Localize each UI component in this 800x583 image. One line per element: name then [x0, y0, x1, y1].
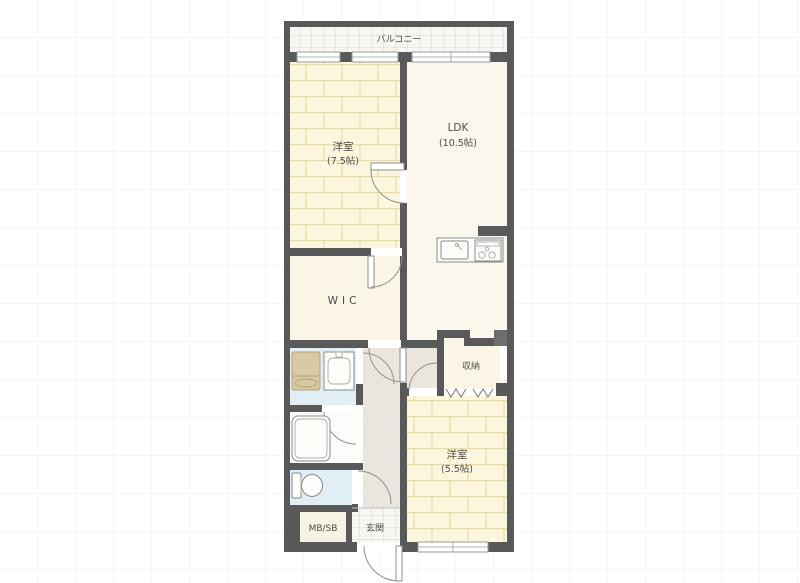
range-hood-wall-stub — [478, 226, 507, 236]
washbasin-icon — [324, 352, 354, 390]
toilet-icon — [292, 473, 323, 498]
bedroom-second-window — [418, 542, 488, 552]
ldk-label: LDK — [448, 122, 470, 134]
kitchen-counter — [437, 238, 503, 262]
wic-label: WIC — [328, 295, 361, 307]
bedroom-main-size: (7.5帖) — [327, 155, 359, 167]
balcony-label: バルコニー — [377, 34, 422, 45]
storage-folding-doors — [444, 388, 496, 397]
floorplan-image: バルコニー 洋室 (7.5帖) LDK (10.5帖) WIC 収納 洋室 (5… — [0, 0, 800, 583]
bedroom-main-floor — [290, 62, 400, 248]
structural-pillar — [494, 330, 507, 346]
bedroom-second-size: (5.5帖) — [441, 463, 473, 475]
balcony-window-bedroom-left — [297, 52, 340, 62]
washing-machine-icon — [292, 352, 320, 390]
ldk-floor — [407, 62, 507, 340]
meter-box-label: MB/SB — [309, 524, 338, 534]
bathtub-icon — [292, 416, 330, 461]
balcony-window-ldk — [412, 52, 490, 62]
bedroom-second-label: 洋室 — [447, 448, 468, 461]
kitchen-sink-icon — [441, 241, 468, 259]
floorplan-svg: バルコニー 洋室 (7.5帖) LDK (10.5帖) WIC 収納 洋室 (5… — [0, 0, 800, 583]
entrance-label: 玄関 — [366, 522, 384, 534]
storage-label: 収納 — [462, 360, 480, 372]
bedroom-main-label: 洋室 — [333, 140, 354, 153]
balcony-window-bedroom-right — [352, 52, 398, 62]
gas-stove-icon — [475, 240, 501, 261]
ldk-size: (10.5帖) — [439, 137, 477, 149]
